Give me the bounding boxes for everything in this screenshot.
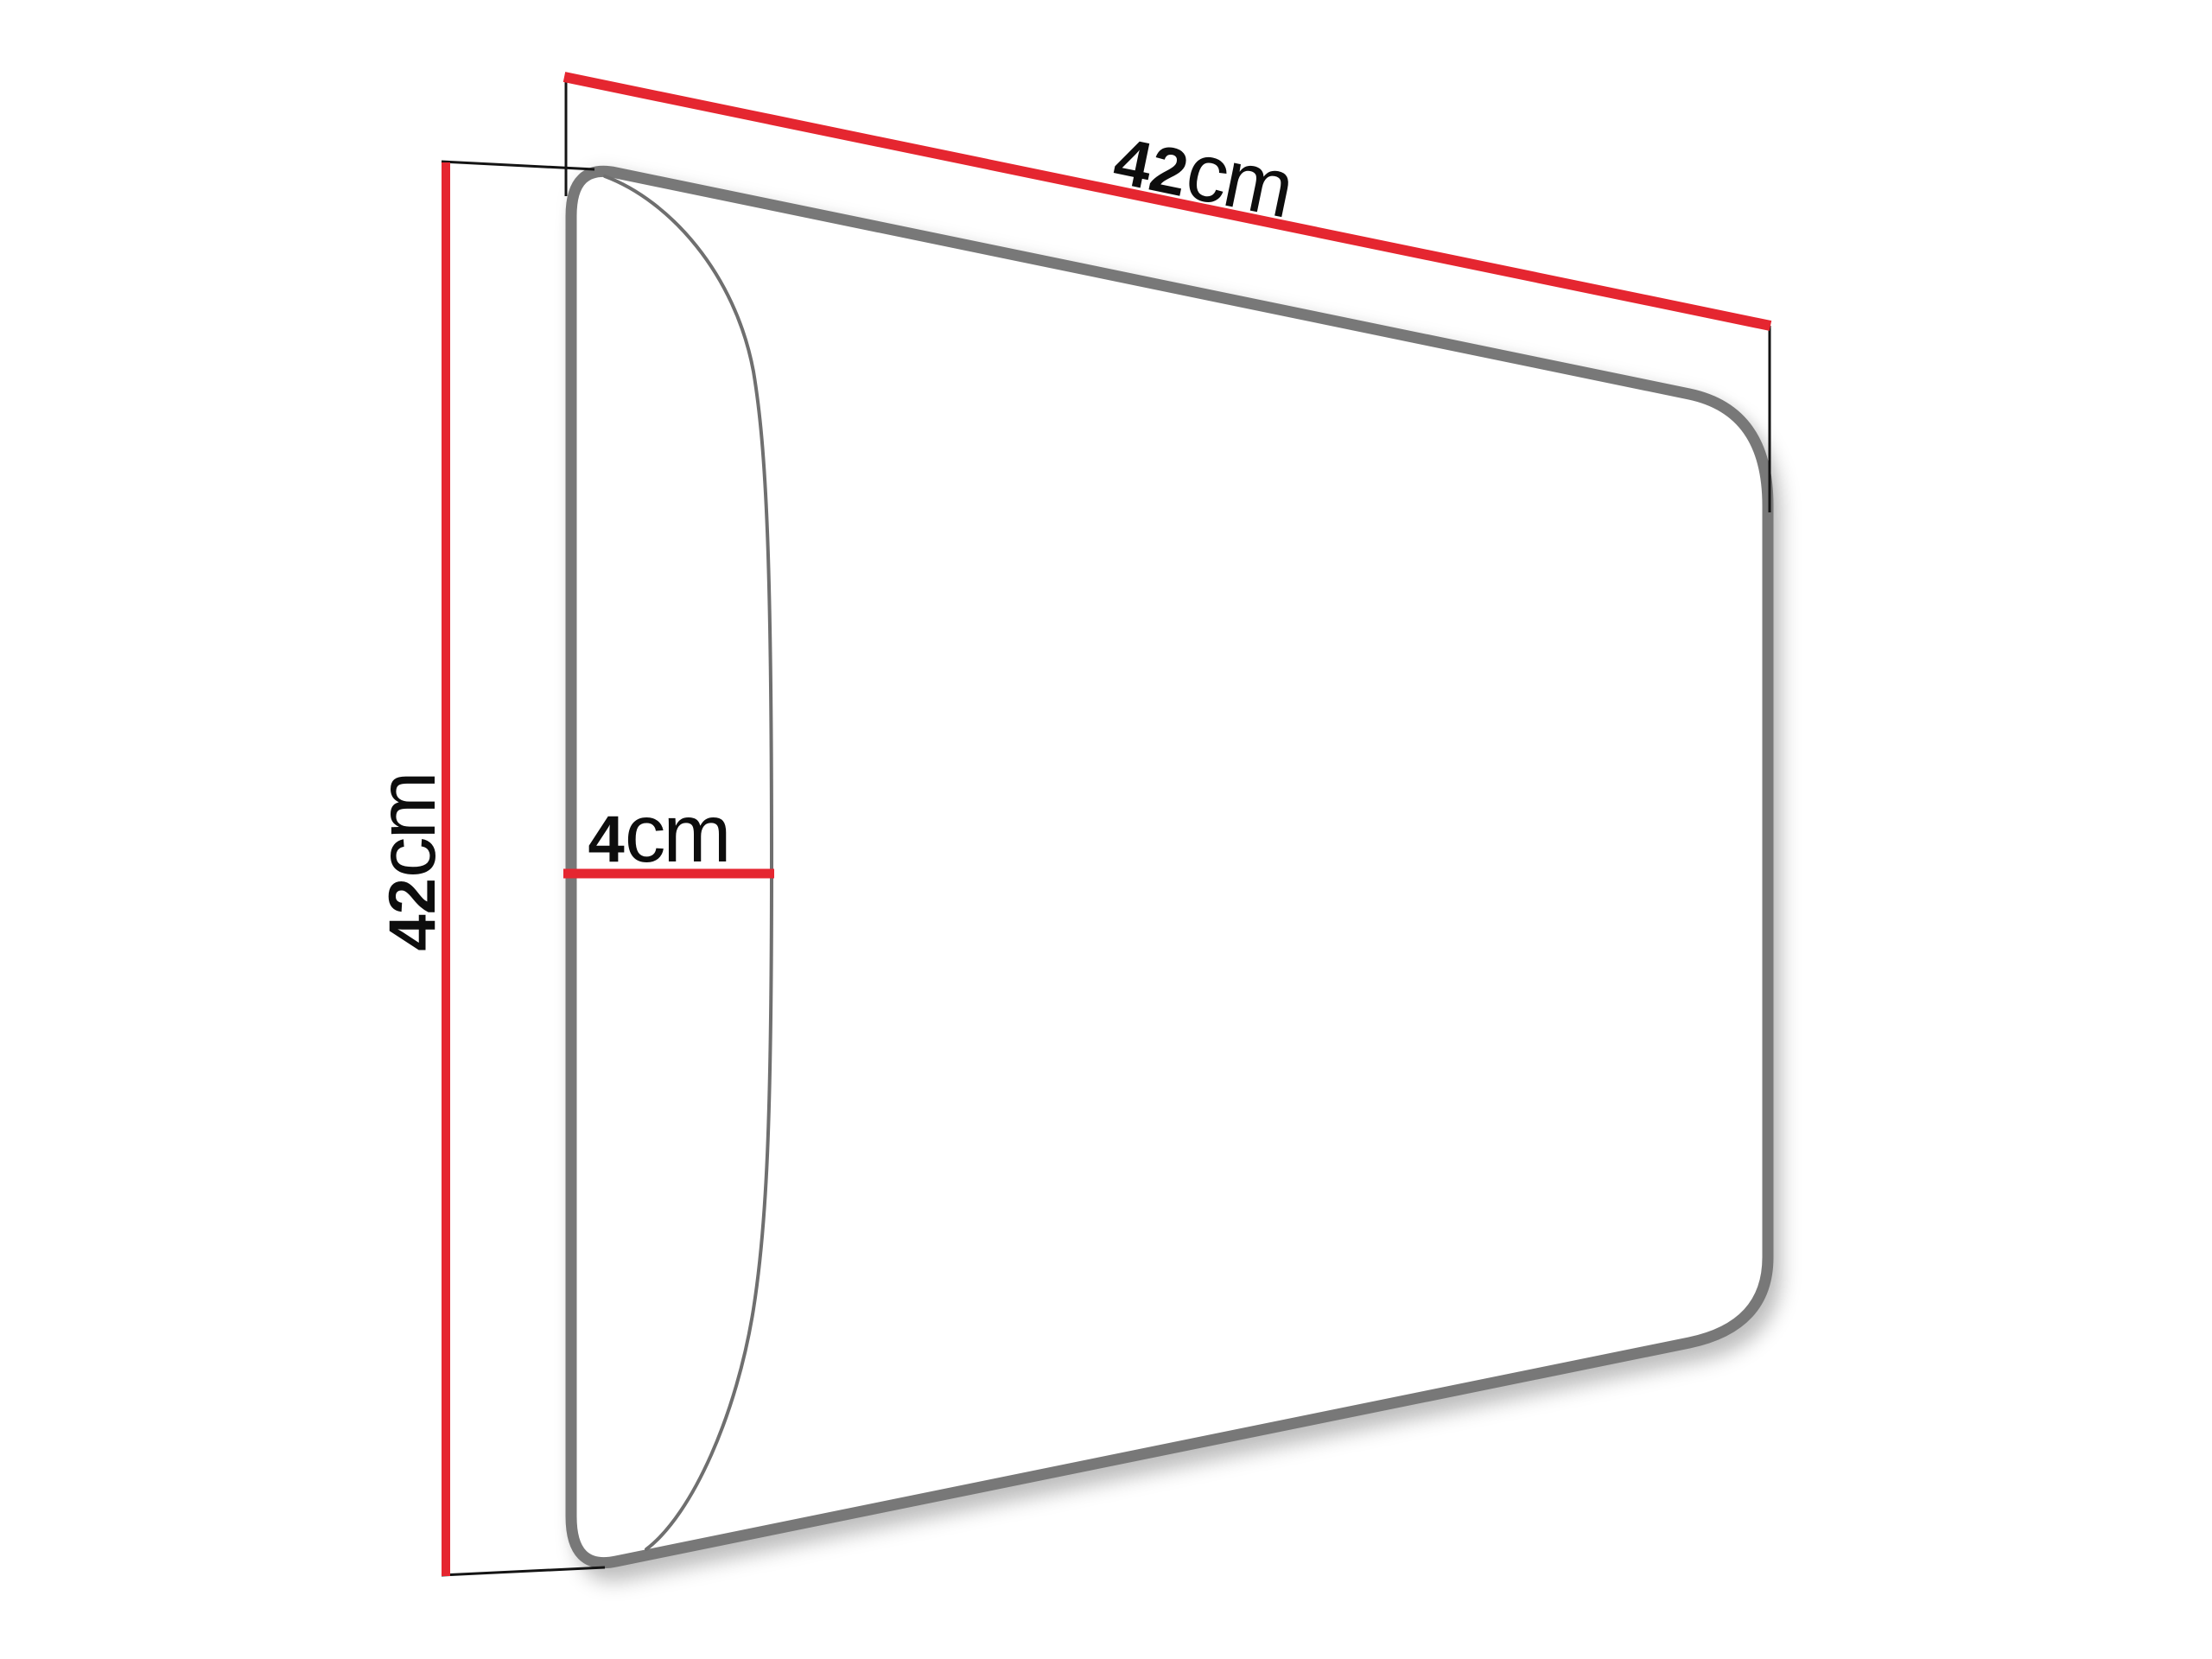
height-extension-line-top	[442, 162, 594, 169]
height-dimension-label: 42cm	[361, 773, 453, 950]
width-dimension-label: 42cm	[1107, 110, 1299, 235]
panel-outline	[571, 171, 1768, 1562]
depth-value: 4	[588, 803, 625, 876]
height-unit: cm	[361, 773, 453, 878]
panel-dimension-diagram: 42cm 42cm 4cm	[0, 0, 2212, 1659]
diagram-svg: 42cm 42cm 4cm	[0, 0, 2212, 1659]
width-unit: cm	[1179, 124, 1300, 235]
height-value: 42	[376, 878, 449, 951]
panel-drawing	[571, 171, 1768, 1562]
height-extension-line-bottom	[442, 1567, 605, 1575]
depth-unit: cm	[625, 788, 729, 880]
